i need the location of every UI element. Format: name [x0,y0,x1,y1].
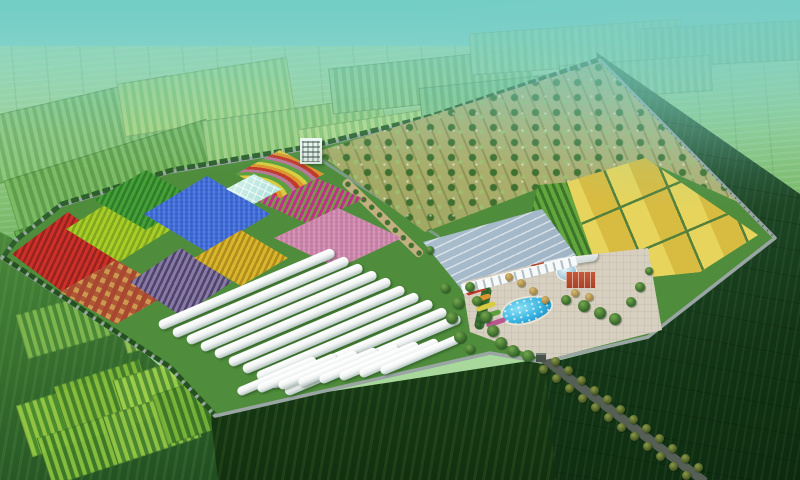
aerial-farm-rendering [0,0,800,480]
atmospheric-haze-corner [0,0,800,480]
